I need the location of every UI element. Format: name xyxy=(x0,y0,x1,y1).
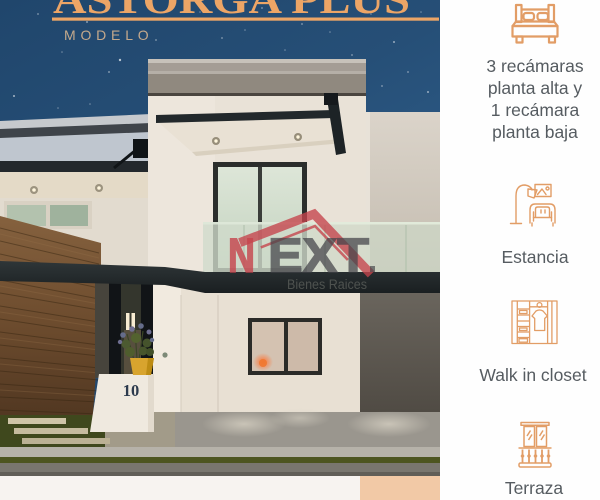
svg-text:N: N xyxy=(228,230,255,283)
svg-text:planta baja: planta baja xyxy=(492,122,578,142)
svg-text:3 recámaras: 3 recámaras xyxy=(486,56,584,76)
svg-text:Estancia: Estancia xyxy=(501,247,568,267)
svg-text:MODELO: MODELO xyxy=(64,27,153,43)
svg-text:planta alta y: planta alta y xyxy=(488,78,583,98)
svg-text:Walk in closet: Walk in closet xyxy=(479,365,586,385)
svg-text:1 recámara: 1 recámara xyxy=(491,100,580,120)
svg-text:Bienes Raices: Bienes Raices xyxy=(287,277,367,292)
svg-text:10: 10 xyxy=(123,381,140,400)
svg-text:EXT: EXT xyxy=(268,230,369,283)
svg-text:Terraza: Terraza xyxy=(505,478,564,498)
